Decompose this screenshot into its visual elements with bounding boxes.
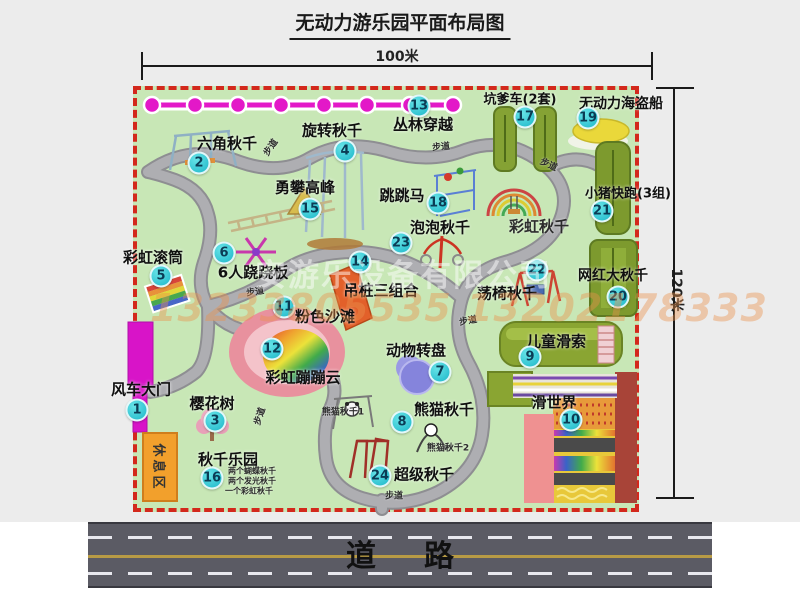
sub-label: 熊猫秋千2 [427, 441, 469, 454]
attraction-label: 跳跳马 [379, 185, 424, 206]
attraction-number-badge: 4 [334, 140, 357, 163]
attraction-number-badge: 6 [213, 242, 236, 265]
attraction-number-badge: 16 [201, 467, 224, 490]
sub-label: 熊猫秋千1 [322, 405, 364, 418]
attraction-number-badge: 10 [560, 409, 583, 432]
road: 道路 [88, 522, 712, 588]
attraction-label: 网红大秋千 [578, 265, 648, 285]
road-label: 道路 [88, 531, 712, 575]
rest-area-label: 休息区 [151, 443, 170, 491]
sub-label: 彩虹秋千 [509, 216, 569, 237]
attraction-number-badge: 2 [188, 152, 211, 175]
attraction-label: 彩虹蹦蹦云 [265, 367, 340, 388]
attraction-label: 风车大门 [111, 379, 171, 400]
attraction-number-badge: 8 [391, 411, 414, 434]
attraction-label: 动物转盘 [386, 340, 446, 361]
attraction-label: 熊猫秋千 [414, 399, 474, 420]
path-label: 步道 [431, 139, 450, 154]
watermark-phones: 13233805535 13202178333 [150, 286, 768, 330]
attraction-number-badge: 19 [577, 107, 600, 130]
attraction-number-badge: 9 [519, 346, 542, 369]
attraction-number-badge: 13 [408, 95, 431, 118]
road-section: 道路 [0, 522, 800, 600]
layout-map: 无动力游乐园平面布局图 100米 120米 [0, 0, 800, 600]
attraction-label: 泡泡秋千 [410, 217, 470, 238]
attraction-label: 六角秋千 [197, 133, 257, 154]
attraction-label: 彩虹滚筒 [123, 247, 183, 268]
dimension-top-label: 100米 [375, 46, 418, 66]
attraction-label: 超级秋千 [394, 464, 454, 485]
attraction-label: 坑爹车(2套) [484, 89, 557, 108]
attraction-number-badge: 5 [150, 265, 173, 288]
attraction-number-badge: 18 [427, 192, 450, 215]
attraction-number-badge: 24 [369, 465, 392, 488]
attraction-label: 小猪快跑(3组) [585, 183, 671, 202]
page-title: 无动力游乐园平面布局图 [289, 8, 510, 40]
attraction-number-badge: 1 [126, 399, 149, 422]
sub-label: 一个彩虹秋千 [225, 486, 273, 497]
path-label: 步道 [385, 489, 403, 502]
attraction-number-badge: 3 [204, 410, 227, 433]
rest-area: 休息区 [142, 432, 178, 502]
attraction-label: 勇攀高峰 [275, 177, 335, 198]
attraction-number-badge: 17 [514, 106, 537, 129]
attraction-number-badge: 7 [429, 361, 452, 384]
attraction-number-badge: 12 [261, 338, 284, 361]
attraction-number-badge: 15 [299, 198, 322, 221]
attraction-label: 旋转秋千 [302, 120, 362, 141]
attraction-number-badge: 21 [591, 200, 614, 223]
